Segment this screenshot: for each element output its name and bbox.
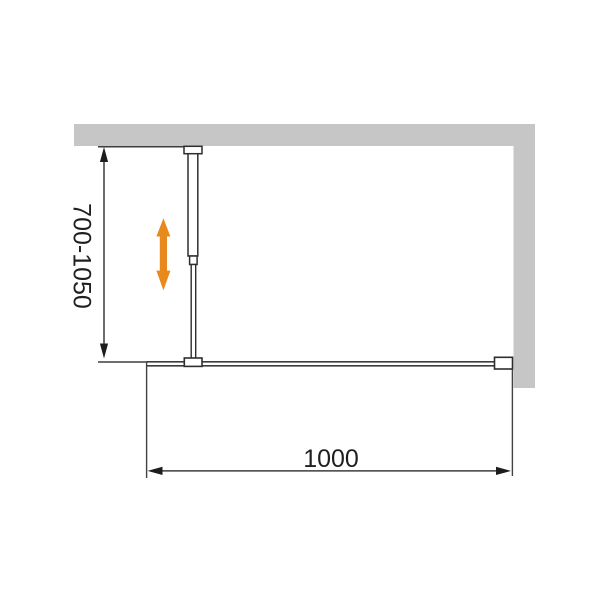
svg-text:700-1050: 700-1050 [68,203,96,309]
svg-text:1000: 1000 [303,445,359,473]
